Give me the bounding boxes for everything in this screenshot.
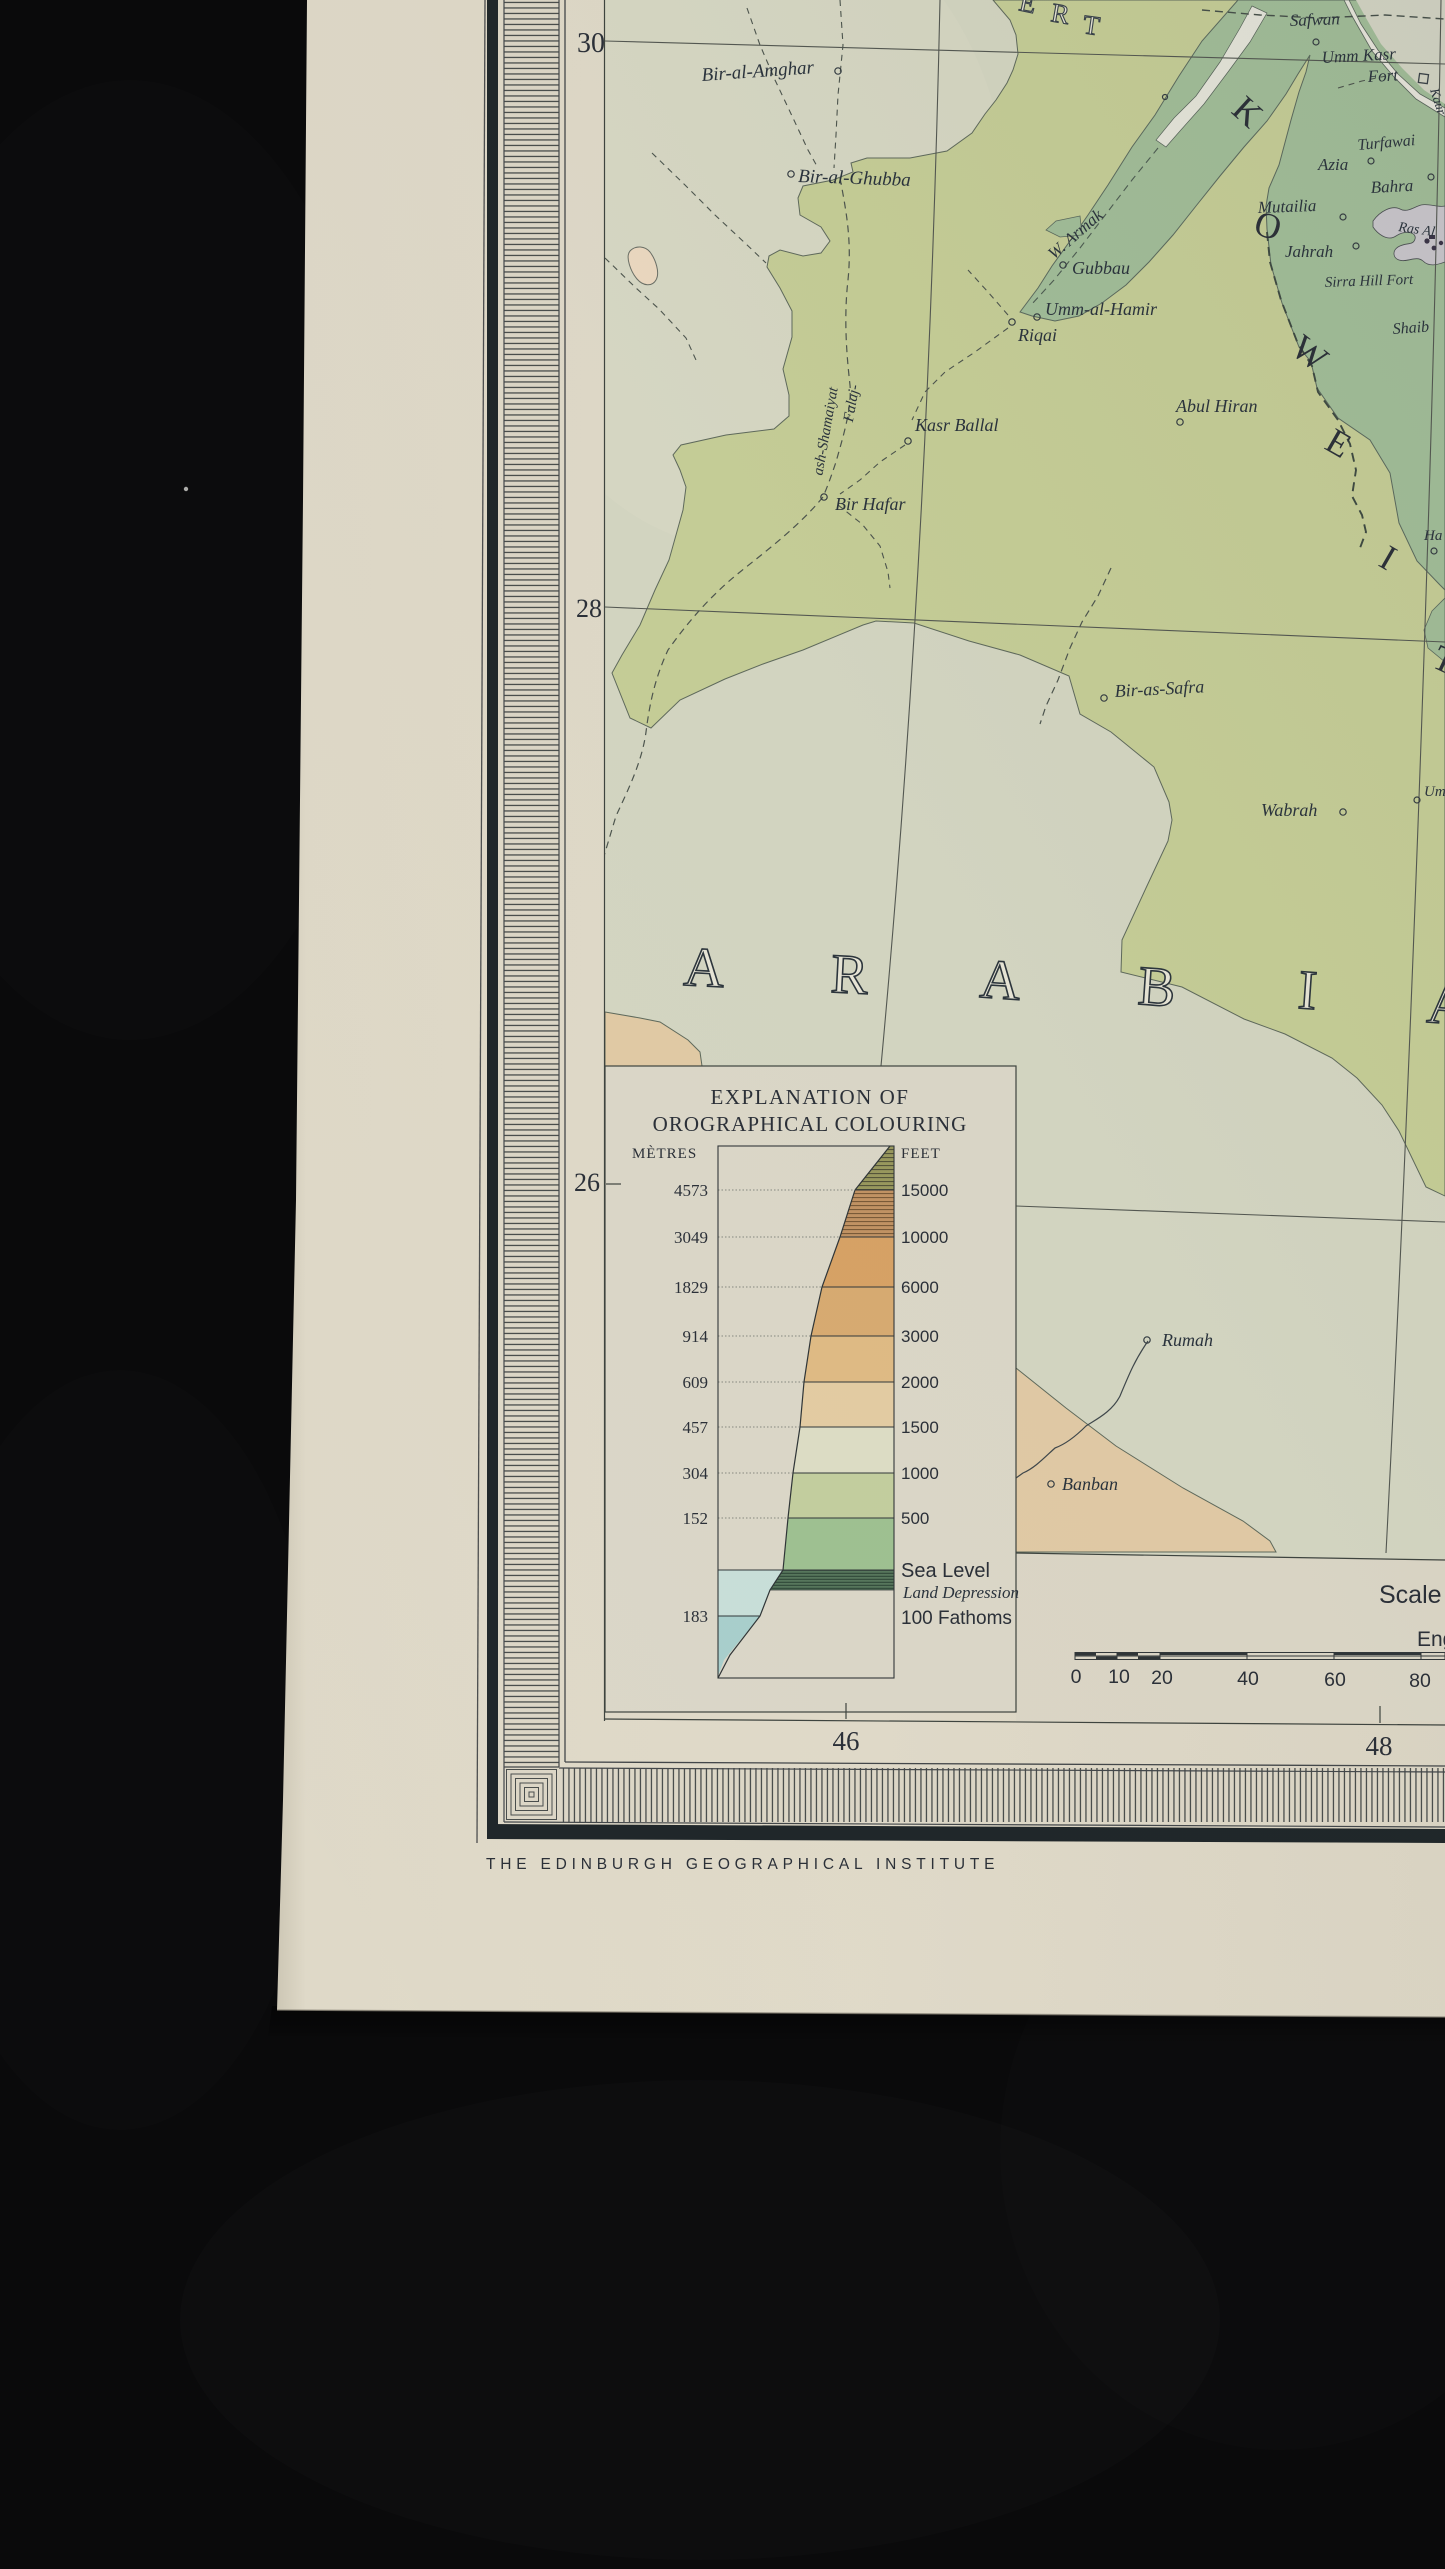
svg-text:THE EDINBURGH GEOGRAPHICAL INS: THE EDINBURGH GEOGRAPHICAL INSTITUTE xyxy=(486,1856,999,1873)
